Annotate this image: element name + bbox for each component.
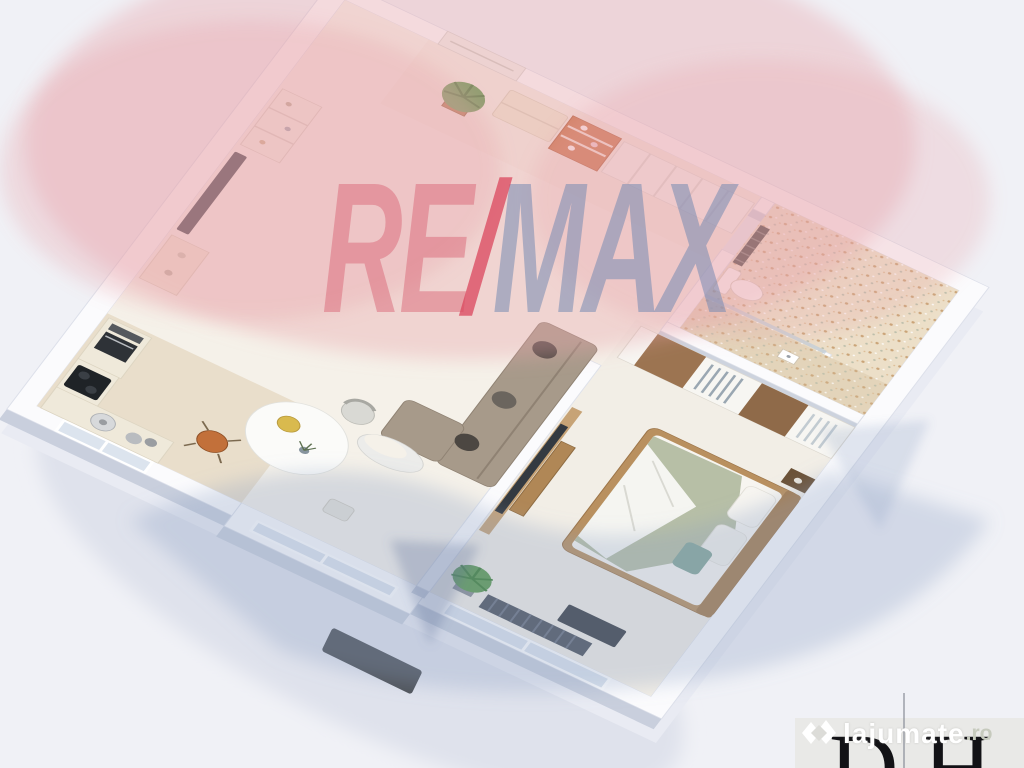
partner-letter-d: D [829,720,898,768]
floorplan-render [0,0,1024,768]
listing-image: RE/MAX D H lajumate .ro [0,0,1024,768]
partner-logo-box: D H [795,718,1024,768]
partner-divider-line [903,693,905,768]
partner-letter-h: H [923,720,992,768]
